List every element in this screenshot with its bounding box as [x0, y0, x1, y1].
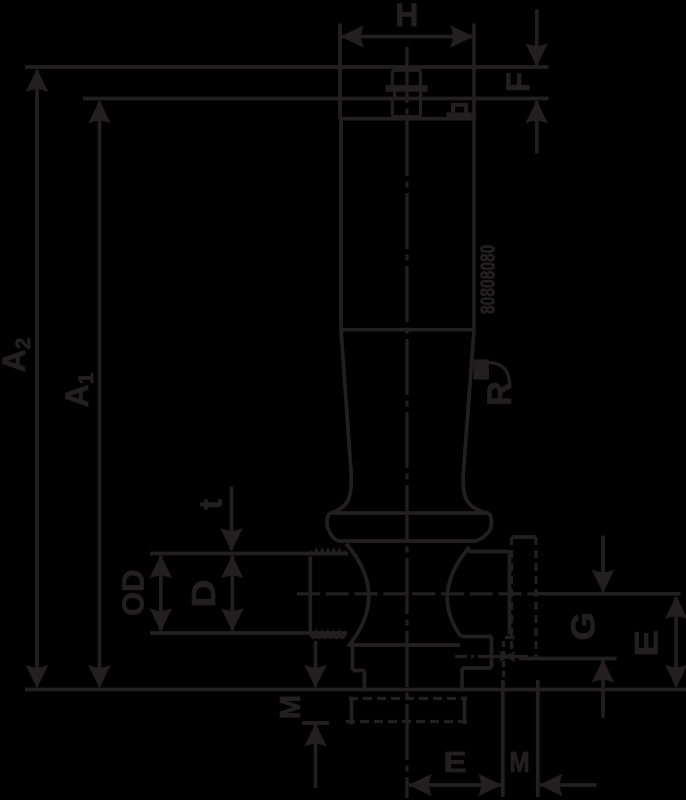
svg-text:D: D — [185, 579, 222, 607]
svg-text:t: t — [193, 499, 229, 510]
svg-text:H: H — [395, 0, 418, 33]
svg-text:OD: OD — [116, 570, 151, 617]
svg-text:F: F — [500, 72, 537, 92]
svg-text:80808080: 80808080 — [477, 245, 499, 314]
svg-text:E: E — [628, 630, 664, 657]
svg-text:M: M — [275, 695, 307, 719]
svg-text:G: G — [565, 612, 602, 641]
svg-text:M: M — [509, 746, 529, 778]
svg-text:R: R — [481, 381, 519, 406]
svg-text:E: E — [443, 746, 466, 779]
